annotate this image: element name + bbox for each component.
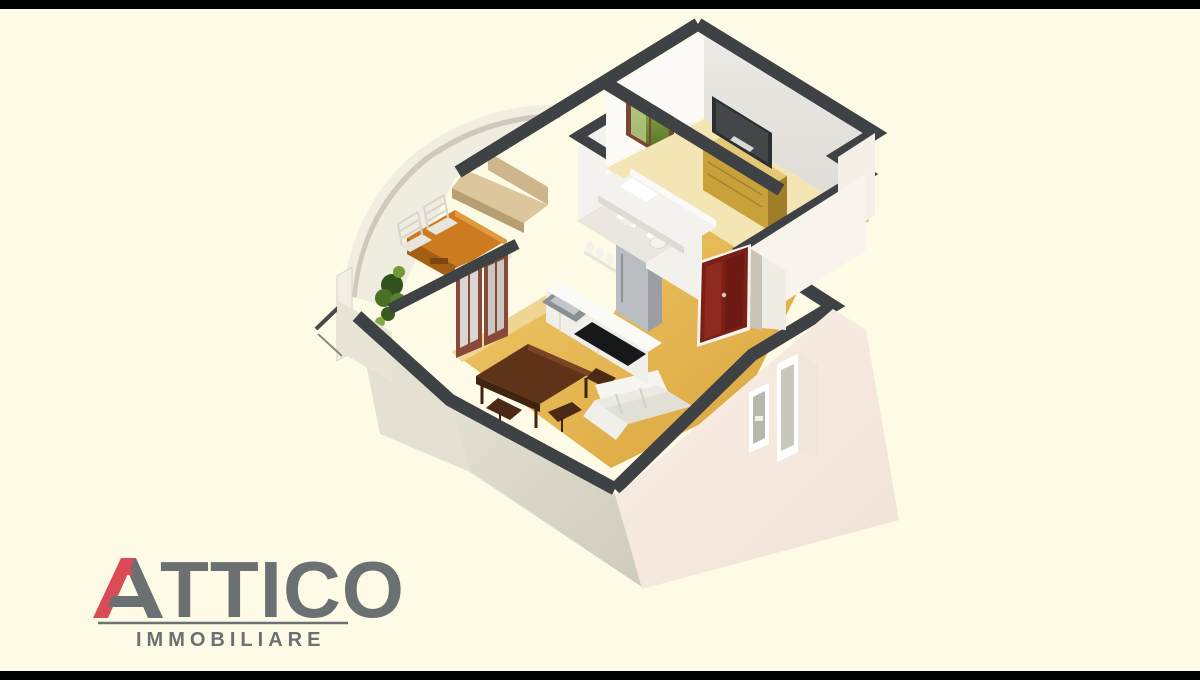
logo-tagline: IMMOBILIARE bbox=[136, 629, 325, 651]
logo-text: TTICO bbox=[160, 545, 405, 634]
letterbox-bottom bbox=[0, 671, 1200, 680]
real-estate-floorplan-image: Curved balcony terrace bbox=[0, 0, 1200, 680]
facade-door-slit bbox=[777, 354, 818, 462]
front-door bbox=[697, 244, 751, 347]
floorplan-scene: Curved balcony terrace bbox=[0, 0, 1200, 680]
facade-window bbox=[749, 383, 769, 453]
letterbox-top bbox=[0, 0, 1200, 9]
